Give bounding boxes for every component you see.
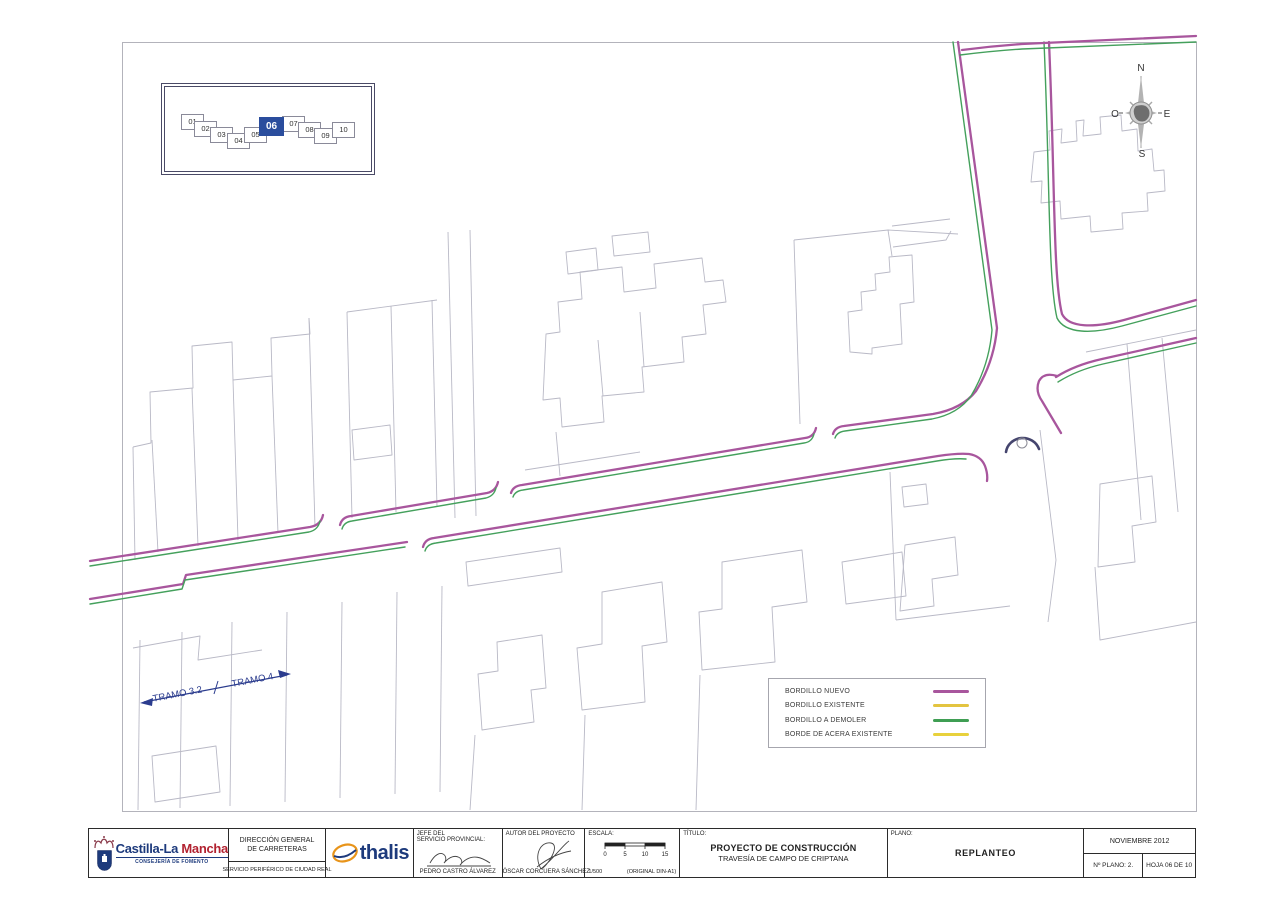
legend-row: BORDE DE ACERA EXISTENTE [769, 731, 985, 738]
legend-swatch [933, 690, 969, 693]
scale-original-format: (ORIGINAL DIN-A1) [627, 869, 676, 875]
legend-label: BORDILLO EXISTENTE [785, 702, 865, 709]
titulo-cell: TÍTULO: PROYECTO DE CONSTRUCCIÓN TRAVESÍ… [680, 829, 888, 877]
agency-name: Castilla-La Mancha [116, 841, 228, 856]
consultant-name: thalis [360, 842, 409, 865]
svg-text:5: 5 [624, 852, 628, 858]
legend-swatch [933, 733, 969, 736]
legend: BORDILLO NUEVOBORDILLO EXISTENTEBORDILLO… [768, 678, 986, 748]
legend-label: BORDILLO A DEMOLER [785, 717, 866, 724]
scale-ratio: 1/500 [588, 869, 602, 875]
signature-jefe [422, 837, 497, 871]
titulo-label: TÍTULO: [683, 831, 706, 837]
fecha-cell: NOVIEMBRE 2012 Nº PLANO: 2. HOJA 06 DE 1… [1084, 829, 1195, 877]
project-subtitle: TRAVESÍA DE CAMPO DE CRIPTANA [718, 854, 848, 863]
legend-swatch [933, 704, 969, 707]
project-title: PROYECTO DE CONSTRUCCIÓN [710, 843, 856, 853]
svg-text:10: 10 [642, 852, 649, 858]
autor-cell: AUTOR DEL PROYECTO ÓSCAR CORCUERA SÁNCHE… [503, 829, 586, 877]
agency-cell: Castilla-La Mancha CONSEJERÍA DE FOMENTO [89, 829, 229, 877]
legend-swatch [933, 719, 969, 722]
legend-row: BORDILLO A DEMOLER [769, 717, 985, 724]
escala-cell: ESCALA: 0 5 10 15 1/500 (ORIGINAL DIN-A1… [585, 829, 680, 877]
svg-text:15: 15 [662, 852, 669, 858]
legend-label: BORDE DE ACERA EXISTENTE [785, 731, 893, 738]
drawing-date: NOVIEMBRE 2012 [1084, 829, 1195, 854]
legend-row: BORDILLO EXISTENTE [769, 702, 985, 709]
plano-number: Nº PLANO: 2. [1084, 854, 1143, 877]
scale-bar: 0 5 10 15 [603, 841, 673, 859]
plano-cell: PLANO: REPLANTEO [888, 829, 1085, 877]
title-block: Castilla-La Mancha CONSEJERÍA DE FOMENTO… [88, 828, 1196, 878]
escala-label: ESCALA: [588, 831, 613, 837]
crown-icon [93, 835, 115, 849]
svg-text:0: 0 [604, 852, 608, 858]
shield-icon [97, 850, 112, 872]
sheet-number: HOJA 06 DE 10 [1143, 854, 1195, 877]
direccion-line2: DE CARRETERAS [229, 845, 325, 854]
jefe-cell: JEFE DELSERVICIO PROVINCIAL: PEDRO CASTR… [414, 829, 503, 877]
direccion-cell: DIRECCIÓN GENERAL DE CARRETERAS SERVICIO… [229, 829, 326, 877]
servicio-line: SERVICIO PERIFÉRICO DE CIUDAD REAL [229, 862, 325, 877]
thalis-logo-icon [330, 840, 360, 866]
plano-name: REPLANTEO [955, 848, 1016, 858]
sheet-tab-06[interactable]: 06 [259, 117, 284, 136]
direccion-line1: DIRECCIÓN GENERAL [229, 836, 325, 845]
consultant-logo-cell: thalis [326, 829, 414, 877]
autor-name: ÓSCAR CORCUERA SÁNCHEZ [503, 869, 585, 875]
sheet-index-map: 01020304050607080910 [164, 86, 372, 172]
agency-subtitle: CONSEJERÍA DE FOMENTO [116, 857, 228, 865]
legend-row: BORDILLO NUEVO [769, 688, 985, 695]
plano-label: PLANO: [891, 831, 913, 837]
jefe-name: PEDRO CASTRO ÁLVAREZ [414, 869, 502, 875]
legend-label: BORDILLO NUEVO [785, 688, 850, 695]
signature-autor [511, 837, 581, 873]
sheet-tab-10[interactable]: 10 [332, 122, 355, 138]
